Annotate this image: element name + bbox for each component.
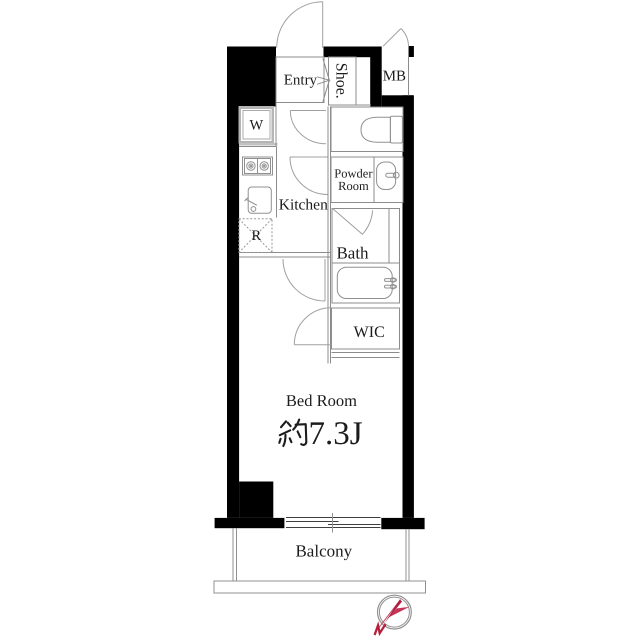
svg-text:R: R	[251, 228, 261, 244]
svg-text:7.3J: 7.3J	[309, 416, 363, 452]
svg-text:WIC: WIC	[354, 324, 385, 341]
svg-text:Bath: Bath	[336, 244, 369, 263]
svg-text:MB: MB	[383, 68, 406, 84]
svg-text:Bed Room: Bed Room	[286, 391, 357, 410]
svg-text:Room: Room	[338, 179, 369, 193]
svg-text:Balcony: Balcony	[295, 542, 352, 561]
svg-text:Kitchen: Kitchen	[279, 196, 328, 213]
svg-text:Shoe.: Shoe.	[333, 63, 350, 99]
svg-text:Entry: Entry	[284, 73, 318, 89]
svg-text:W: W	[250, 117, 264, 133]
